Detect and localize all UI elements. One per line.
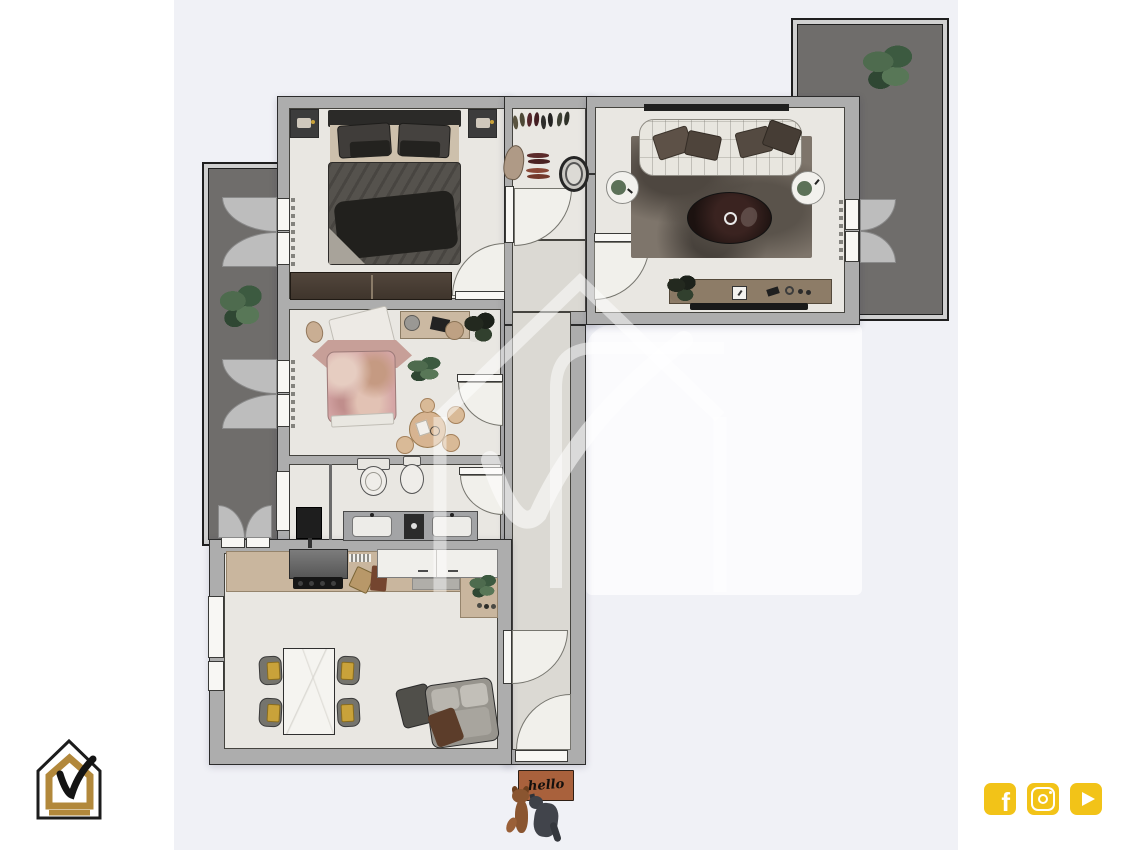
dining-chair bbox=[336, 697, 360, 727]
dish-rack bbox=[349, 554, 371, 562]
kitchen-balcony-curtain-arcs bbox=[218, 505, 272, 538]
loveseat bbox=[424, 677, 500, 750]
entry-door-leaf bbox=[505, 186, 514, 243]
curtain-arc bbox=[222, 197, 277, 232]
shoe-pair bbox=[512, 112, 527, 131]
instagram-dot bbox=[1049, 791, 1052, 794]
shoe bbox=[526, 168, 549, 173]
nightstand bbox=[468, 109, 497, 138]
mirror-mount bbox=[588, 173, 595, 175]
facebook-f-glyph: f bbox=[1001, 787, 1010, 818]
cooktop bbox=[293, 577, 343, 589]
lamp-knob bbox=[490, 120, 494, 124]
wall-mirror bbox=[559, 156, 590, 193]
decor-dots bbox=[798, 289, 803, 294]
shoe bbox=[527, 153, 549, 158]
dining-chair bbox=[336, 655, 360, 685]
pouf bbox=[396, 436, 414, 454]
towel-rail bbox=[329, 464, 332, 540]
double-bed bbox=[328, 110, 461, 265]
balcony-plant bbox=[219, 282, 265, 332]
table-plant bbox=[797, 181, 812, 196]
bedroom2-curtain-arcs bbox=[222, 359, 277, 429]
curtain-arc bbox=[222, 232, 277, 267]
bedroom2-balcony-door-leaf bbox=[277, 394, 290, 427]
chair-seat bbox=[267, 662, 281, 681]
house-check-watermark bbox=[428, 252, 728, 592]
youtube-icon[interactable] bbox=[1070, 783, 1102, 815]
table-plant bbox=[611, 180, 626, 195]
lamp-knob bbox=[311, 120, 315, 124]
lamp bbox=[476, 118, 490, 128]
cat-tail bbox=[549, 821, 562, 842]
facebook-icon[interactable]: f bbox=[984, 783, 1016, 815]
clock bbox=[732, 286, 747, 300]
table-decor bbox=[738, 205, 760, 229]
side-table bbox=[791, 171, 825, 205]
shoe bbox=[527, 174, 550, 179]
bedroom1-balcony-door-leaf bbox=[277, 232, 290, 265]
sink bbox=[352, 516, 392, 537]
mirror-inner bbox=[565, 162, 583, 186]
instagram-icon[interactable] bbox=[1027, 783, 1059, 815]
nightstand bbox=[290, 109, 319, 138]
clock-hand bbox=[737, 290, 742, 296]
curtain-arc bbox=[218, 505, 245, 538]
decor-mark bbox=[627, 188, 633, 193]
chair-seat bbox=[341, 704, 355, 723]
kitchen-window bbox=[208, 596, 224, 658]
bidet bbox=[398, 456, 426, 496]
unit-leg bbox=[308, 538, 312, 548]
living-balcony-curtain-arcs bbox=[860, 199, 896, 263]
bedroom1-curtain-arcs bbox=[222, 197, 277, 267]
bedroom2-balcony-door-leaf bbox=[277, 360, 290, 393]
desk-pot bbox=[404, 315, 420, 331]
entrance-door-leaf bbox=[515, 750, 568, 762]
toilet bbox=[356, 458, 392, 498]
cabinet-handle bbox=[418, 570, 428, 572]
pillow-small bbox=[350, 140, 391, 158]
bidet-bowl bbox=[400, 464, 424, 494]
kitchen-balcony-door-leaf bbox=[246, 537, 270, 548]
toilet-seat bbox=[365, 472, 382, 491]
dining-chair bbox=[258, 655, 282, 685]
curtain-arc bbox=[222, 394, 277, 429]
kitchen-door-leaf bbox=[503, 630, 512, 684]
wardrobe-divider bbox=[371, 275, 373, 299]
decor-item bbox=[766, 286, 780, 296]
shoe-pair-horizontal bbox=[527, 153, 551, 164]
range-hood bbox=[289, 549, 348, 579]
living-window-band bbox=[644, 104, 789, 111]
chair-seat bbox=[341, 662, 355, 681]
bedroom1-curtain-marks bbox=[291, 198, 295, 266]
kitchen-window bbox=[208, 661, 224, 691]
bedroom1-balcony-door-leaf bbox=[277, 198, 290, 231]
lamp bbox=[297, 118, 311, 128]
table-tray bbox=[724, 212, 737, 225]
house-check-logo bbox=[33, 736, 105, 822]
curtain-arc bbox=[245, 505, 272, 538]
dining-chair bbox=[258, 697, 282, 727]
living-balcony-door-leaf bbox=[845, 199, 859, 230]
living-balcony-door-leaf bbox=[845, 231, 859, 262]
youtube-play-glyph bbox=[1082, 792, 1095, 806]
laundry-unit bbox=[296, 507, 322, 539]
chair-seat bbox=[267, 704, 281, 723]
instagram-lens bbox=[1038, 794, 1048, 804]
faucet bbox=[370, 513, 374, 517]
pillow-small bbox=[400, 140, 441, 157]
knob bbox=[411, 523, 417, 529]
decor-ring bbox=[785, 286, 794, 295]
side-table bbox=[606, 171, 639, 204]
cat bbox=[527, 794, 563, 844]
burner bbox=[298, 581, 303, 586]
floorplan-rendering: hello f bbox=[0, 0, 1133, 850]
bedroom2-curtain-marks bbox=[291, 360, 295, 428]
counter-jars bbox=[477, 603, 482, 608]
decor-mark bbox=[814, 179, 819, 185]
curtain-arc bbox=[860, 231, 896, 263]
shoe bbox=[528, 159, 550, 164]
back-cushion bbox=[459, 682, 489, 708]
shoe-pair bbox=[526, 112, 540, 131]
living-curtain-marks bbox=[839, 200, 843, 262]
curtain-arc bbox=[222, 359, 277, 394]
shoe-pair bbox=[556, 110, 572, 131]
dining-table bbox=[283, 648, 335, 735]
coffee-table bbox=[687, 192, 772, 244]
shoe-pair-horizontal bbox=[526, 168, 551, 180]
bathroom-window bbox=[276, 471, 290, 531]
kitchen-balcony-door-leaf bbox=[221, 537, 245, 548]
vanity-cabinet bbox=[404, 514, 424, 539]
terrace-plant bbox=[862, 42, 916, 94]
curtain-arc bbox=[860, 199, 896, 231]
shoe-pair bbox=[541, 113, 555, 132]
